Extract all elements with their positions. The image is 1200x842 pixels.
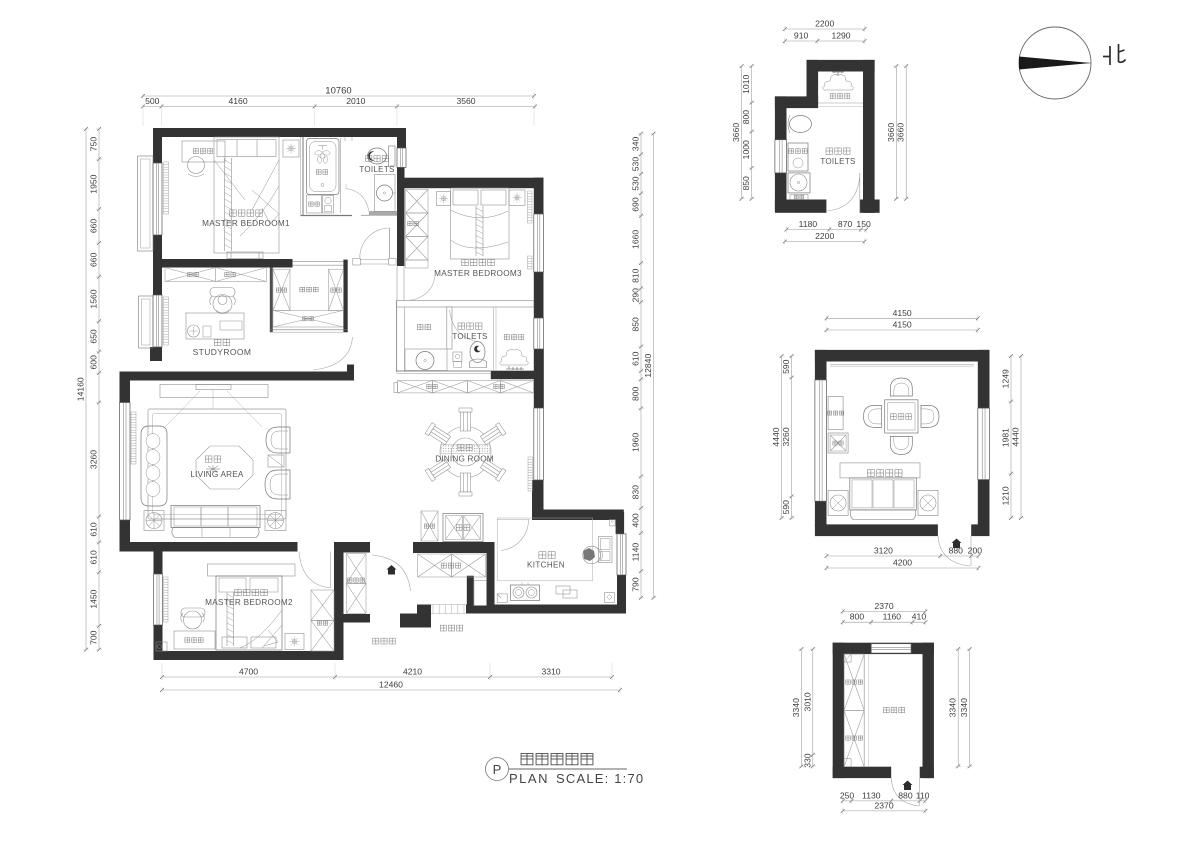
svg-text:410: 410 xyxy=(912,612,927,622)
svg-text:850: 850 xyxy=(741,176,751,191)
svg-text:200: 200 xyxy=(968,546,983,556)
svg-text:SCALE: 1:70: SCALE: 1:70 xyxy=(556,771,644,786)
svg-text:12460: 12460 xyxy=(379,680,403,690)
svg-text:MASTER BEDROOM3: MASTER BEDROOM3 xyxy=(434,269,522,278)
svg-text:330: 330 xyxy=(802,753,812,768)
svg-text:110: 110 xyxy=(916,790,930,800)
svg-text:MASTER BEDROOM2: MASTER BEDROOM2 xyxy=(205,598,293,607)
svg-text:P: P xyxy=(493,762,502,777)
svg-text:1249: 1249 xyxy=(1001,369,1011,388)
svg-text:800: 800 xyxy=(850,612,865,622)
svg-text:590: 590 xyxy=(781,500,791,515)
svg-text:1560: 1560 xyxy=(89,289,99,308)
svg-text:3120: 3120 xyxy=(874,546,893,556)
svg-text:880: 880 xyxy=(949,546,964,556)
svg-text:1130: 1130 xyxy=(862,790,881,800)
svg-text:690: 690 xyxy=(631,197,641,212)
svg-text:3310: 3310 xyxy=(541,667,560,677)
svg-text:600: 600 xyxy=(89,355,99,370)
svg-text:1210: 1210 xyxy=(1001,486,1011,505)
svg-text:2200: 2200 xyxy=(815,19,834,29)
svg-text:340: 340 xyxy=(631,137,641,152)
svg-text:3660: 3660 xyxy=(896,123,906,142)
svg-text:800: 800 xyxy=(631,386,641,401)
svg-text:4700: 4700 xyxy=(239,667,258,677)
svg-text:1950: 1950 xyxy=(89,174,99,193)
svg-text:MASTER BEDROOM1: MASTER BEDROOM1 xyxy=(202,219,290,228)
svg-text:2370: 2370 xyxy=(874,800,893,810)
svg-text:700: 700 xyxy=(89,630,99,645)
svg-text:880: 880 xyxy=(898,790,913,800)
svg-text:TOILETS: TOILETS xyxy=(452,332,487,341)
svg-text:4160: 4160 xyxy=(228,96,247,106)
svg-text:3660: 3660 xyxy=(886,123,896,142)
svg-text:250: 250 xyxy=(840,790,855,800)
svg-text:830: 830 xyxy=(631,485,641,500)
svg-text:2370: 2370 xyxy=(874,601,893,611)
svg-text:4440: 4440 xyxy=(1011,427,1021,446)
svg-text:1160: 1160 xyxy=(883,612,902,622)
svg-text:1290: 1290 xyxy=(831,31,850,41)
svg-text:290: 290 xyxy=(631,288,641,303)
svg-text:3260: 3260 xyxy=(781,427,791,446)
svg-text:3010: 3010 xyxy=(802,692,812,711)
svg-text:4150: 4150 xyxy=(893,308,912,318)
svg-text:12840: 12840 xyxy=(643,354,653,378)
svg-text:TOILETS: TOILETS xyxy=(359,165,394,174)
svg-text:150: 150 xyxy=(856,219,871,229)
svg-text:1450: 1450 xyxy=(89,589,99,608)
svg-text:STUDYROOM: STUDYROOM xyxy=(193,347,252,357)
svg-text:400: 400 xyxy=(631,513,641,528)
svg-text:DINING ROOM: DINING ROOM xyxy=(435,455,494,464)
svg-text:1000: 1000 xyxy=(741,140,751,159)
svg-text:870: 870 xyxy=(838,219,853,229)
svg-text:4440: 4440 xyxy=(771,427,781,446)
svg-text:750: 750 xyxy=(89,137,99,152)
svg-text:850: 850 xyxy=(631,317,641,332)
svg-text:610: 610 xyxy=(89,550,99,565)
svg-text:800: 800 xyxy=(741,110,751,125)
svg-text:3260: 3260 xyxy=(89,450,99,469)
svg-text:790: 790 xyxy=(631,577,641,592)
svg-text:530: 530 xyxy=(631,157,641,172)
svg-text:1010: 1010 xyxy=(741,75,751,94)
svg-text:LIVING AREA: LIVING AREA xyxy=(190,470,244,479)
svg-text:2010: 2010 xyxy=(346,96,365,106)
svg-text:3660: 3660 xyxy=(731,123,741,142)
svg-text:1140: 1140 xyxy=(631,543,641,562)
svg-text:810: 810 xyxy=(631,268,641,283)
svg-text:910: 910 xyxy=(794,31,809,41)
svg-text:14160: 14160 xyxy=(76,377,86,401)
svg-text:650: 650 xyxy=(89,329,99,344)
svg-text:4210: 4210 xyxy=(403,667,422,677)
svg-text:3340: 3340 xyxy=(948,698,958,717)
svg-text:3560: 3560 xyxy=(456,96,475,106)
svg-text:3340: 3340 xyxy=(959,698,969,717)
svg-text:4200: 4200 xyxy=(893,558,912,568)
svg-text:500: 500 xyxy=(145,96,160,106)
svg-text:10760: 10760 xyxy=(325,86,351,97)
svg-text:1981: 1981 xyxy=(1001,428,1011,447)
svg-text:530: 530 xyxy=(631,176,641,191)
svg-text:1660: 1660 xyxy=(631,230,641,249)
svg-text:3340: 3340 xyxy=(791,698,801,717)
svg-text:590: 590 xyxy=(781,359,791,374)
svg-text:TOILETS: TOILETS xyxy=(820,157,855,166)
svg-text:KITCHEN: KITCHEN xyxy=(527,561,565,570)
svg-text:1180: 1180 xyxy=(799,219,818,229)
svg-text:PLAN: PLAN xyxy=(509,771,549,786)
svg-text:660: 660 xyxy=(89,252,99,267)
svg-text:660: 660 xyxy=(89,219,99,234)
svg-text:2200: 2200 xyxy=(815,231,834,241)
svg-text:610: 610 xyxy=(89,522,99,537)
svg-text:610: 610 xyxy=(631,351,641,366)
svg-text:1960: 1960 xyxy=(631,433,641,452)
svg-text:4150: 4150 xyxy=(893,320,912,330)
